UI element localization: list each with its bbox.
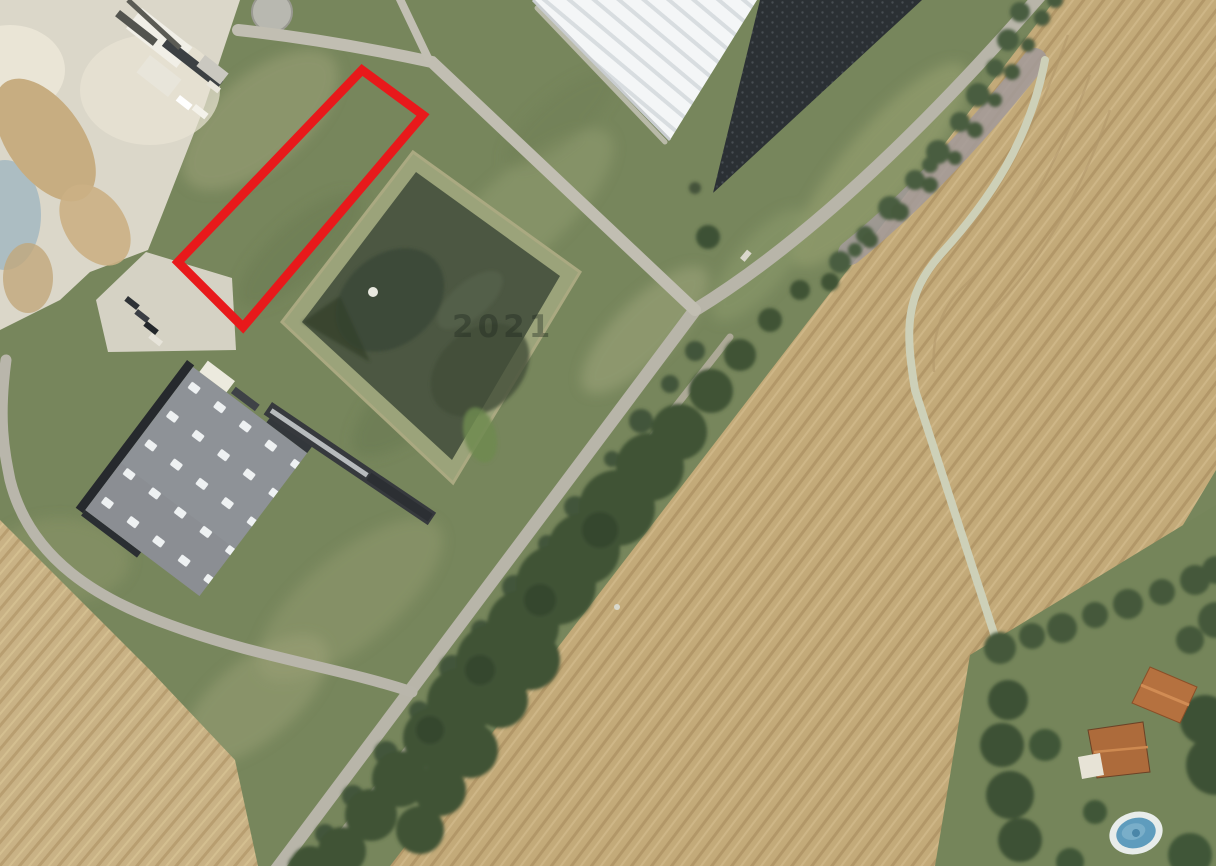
satellite-map-image: 2021 bbox=[0, 0, 1216, 866]
round-bush bbox=[696, 225, 720, 249]
terrace bbox=[1078, 753, 1104, 779]
small-tree-spot bbox=[689, 182, 701, 194]
road-marker bbox=[614, 604, 620, 610]
buoy-marker bbox=[368, 287, 378, 297]
aerial-imagery: 2021 bbox=[0, 0, 1216, 866]
map-watermark: 2021 bbox=[452, 309, 554, 345]
